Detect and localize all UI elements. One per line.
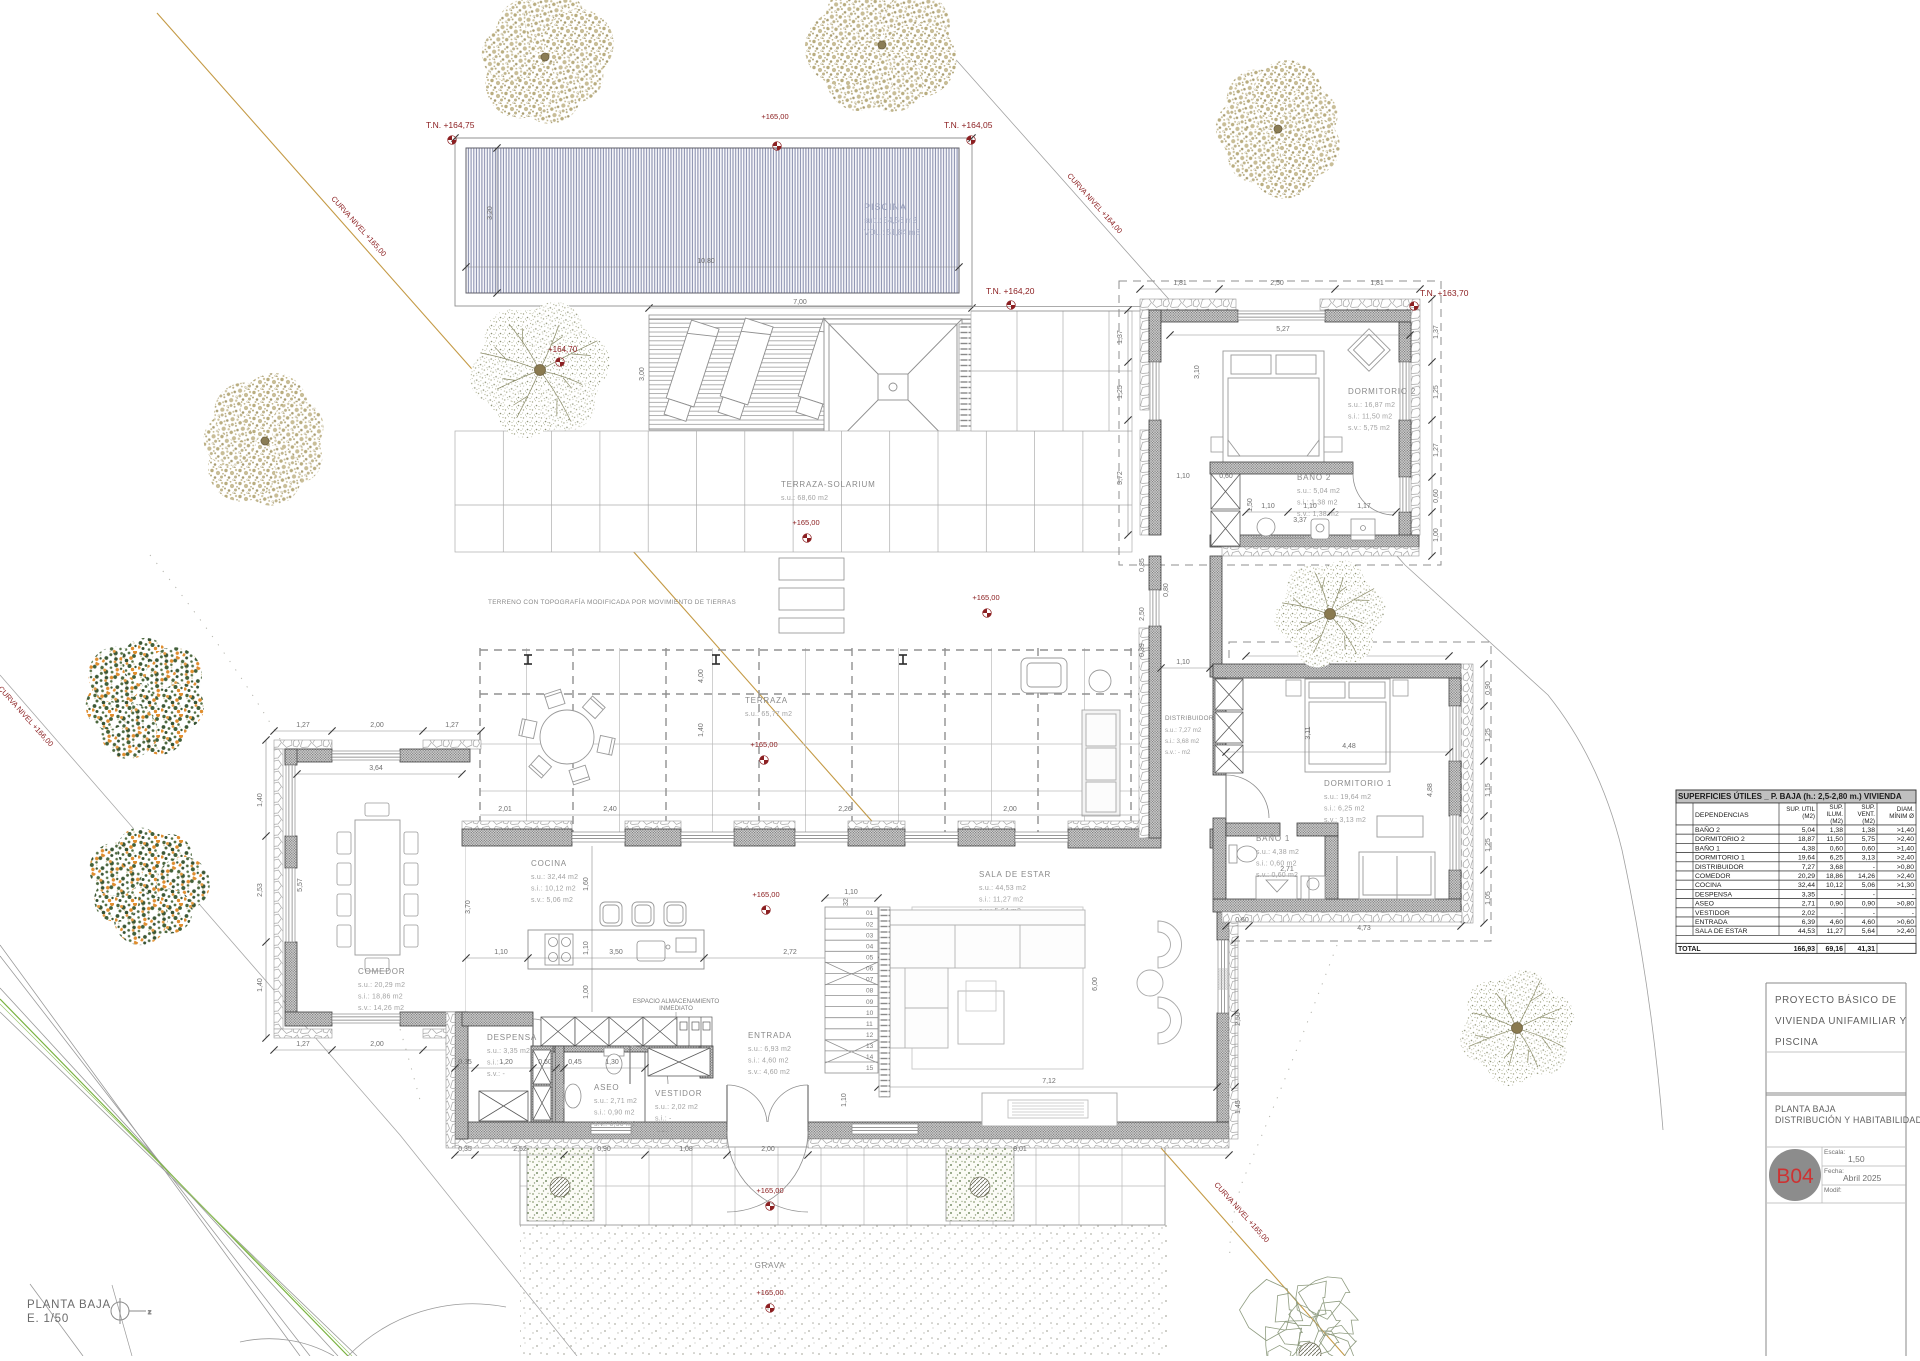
svg-text:13: 13: [866, 1043, 874, 1050]
svg-text:10: 10: [866, 1010, 874, 1017]
svg-text:0,90: 0,90: [1830, 901, 1843, 908]
svg-text:3,10: 3,10: [1194, 365, 1201, 379]
svg-text:11,50: 11,50: [1826, 836, 1843, 843]
svg-text:1,50: 1,50: [1848, 1154, 1865, 1164]
svg-text:0,90: 0,90: [597, 1146, 611, 1153]
svg-text:1,08: 1,08: [679, 1146, 693, 1153]
svg-text:0,45: 0,45: [568, 1059, 582, 1066]
svg-text:VIVIENDA UNIFAMILIAR Y: VIVIENDA UNIFAMILIAR Y: [1775, 1016, 1907, 1027]
svg-text:SALA DE ESTAR: SALA DE ESTAR: [1695, 928, 1747, 935]
svg-text:05: 05: [866, 955, 874, 962]
svg-text:4,60: 4,60: [1830, 919, 1843, 926]
svg-text:DORMITORIO 2: DORMITORIO 2: [1695, 836, 1745, 843]
svg-text:2,00: 2,00: [370, 1041, 384, 1048]
svg-text:2,72: 2,72: [783, 949, 797, 956]
svg-text:2,01: 2,01: [498, 806, 512, 813]
svg-text:T.N. +164,75: T.N. +164,75: [426, 120, 475, 130]
svg-text:s.u.: 5,04 m2: s.u.: 5,04 m2: [1297, 488, 1340, 495]
svg-text:ILUM.: ILUM.: [1826, 811, 1843, 818]
svg-text:-: -: [1841, 910, 1843, 917]
svg-text:DESPENSA: DESPENSA: [1695, 891, 1732, 898]
svg-text:1,40: 1,40: [698, 723, 705, 737]
svg-text:5,04: 5,04: [1802, 827, 1815, 834]
svg-text:(M2): (M2): [1802, 813, 1815, 820]
svg-text:09: 09: [866, 999, 874, 1006]
svg-text:BAÑO 1: BAÑO 1: [1256, 834, 1290, 843]
svg-text:1,10: 1,10: [494, 949, 508, 956]
svg-text:s.v.: 0,90 m2: s.v.: 0,90 m2: [594, 1121, 636, 1128]
svg-text:2,00: 2,00: [370, 722, 384, 729]
svg-text:2,50: 2,50: [1235, 1012, 1242, 1026]
svg-text:>0,80: >0,80: [1897, 901, 1914, 908]
svg-text:0,60: 0,60: [1433, 489, 1440, 503]
svg-text:SUPERFICIES ÚTILES _ P. BAJA (: SUPERFICIES ÚTILES _ P. BAJA (h.: 2,5-2,…: [1678, 792, 1902, 801]
svg-text:3,35: 3,35: [1802, 891, 1815, 898]
svg-text:>2,40: >2,40: [1897, 836, 1914, 843]
svg-text:Fecha:: Fecha:: [1824, 1168, 1844, 1175]
svg-text:0,60: 0,60: [1862, 845, 1875, 852]
svg-text:1,10: 1,10: [844, 889, 858, 896]
svg-text:4,38: 4,38: [1802, 845, 1815, 852]
svg-text:+165,00: +165,00: [761, 112, 788, 121]
svg-text:-: -: [1873, 910, 1875, 917]
svg-text:s.v.: - m2: s.v.: - m2: [1165, 749, 1191, 756]
svg-text:ASEO: ASEO: [594, 1083, 619, 1092]
svg-text:s.i.: 10,12 m2: s.i.: 10,12 m2: [531, 886, 576, 893]
svg-text:1,45: 1,45: [1235, 1100, 1242, 1114]
svg-text:7,00: 7,00: [793, 299, 807, 306]
svg-text:s.i.: -: s.i.: -: [655, 1116, 672, 1123]
svg-text:1,27: 1,27: [296, 722, 310, 729]
svg-text:GRAVA: GRAVA: [755, 1261, 786, 1270]
svg-text:0,85: 0,85: [1139, 558, 1146, 572]
svg-text:-: -: [1912, 891, 1914, 898]
svg-text:s.v.: 0,60 m2: s.v.: 0,60 m2: [1256, 872, 1298, 879]
svg-text:COCINA: COCINA: [1695, 882, 1722, 889]
svg-text:VENT.: VENT.: [1857, 811, 1875, 818]
svg-text:20,29: 20,29: [1798, 873, 1815, 880]
svg-text:s.u.: 65,77 m2: s.u.: 65,77 m2: [745, 711, 792, 718]
svg-text:s.i.: 0,90 m2: s.i.: 0,90 m2: [594, 1110, 635, 1117]
svg-text:>2,40: >2,40: [1897, 928, 1914, 935]
svg-text:1,81: 1,81: [1173, 280, 1187, 287]
svg-text:11: 11: [866, 1021, 873, 1028]
svg-text:1,25: 1,25: [1485, 838, 1492, 852]
svg-text:1,38: 1,38: [1830, 827, 1843, 834]
svg-text:s.u.: 7,27 m2: s.u.: 7,27 m2: [1165, 727, 1202, 734]
svg-text:3,37: 3,37: [1293, 517, 1307, 524]
svg-text:06: 06: [866, 966, 874, 973]
svg-text:1,60: 1,60: [583, 877, 590, 891]
svg-text:DESPENSA: DESPENSA: [487, 1033, 537, 1042]
svg-text:0,35: 0,35: [458, 1059, 472, 1066]
svg-text:5,75: 5,75: [1862, 836, 1875, 843]
svg-text:B04: B04: [1776, 1165, 1814, 1188]
svg-text:VOL.: 51,84 m3: VOL.: 51,84 m3: [864, 228, 921, 237]
svg-text:1,50: 1,50: [1247, 498, 1254, 512]
svg-text:11,27: 11,27: [1826, 928, 1843, 935]
svg-text:4,60: 4,60: [1862, 919, 1875, 926]
svg-text:ENTRADA: ENTRADA: [748, 1031, 792, 1040]
svg-text:1,38: 1,38: [1862, 827, 1875, 834]
svg-text:VESTIDOR: VESTIDOR: [655, 1089, 702, 1098]
svg-text:>2,40: >2,40: [1897, 855, 1914, 862]
svg-text:2,00: 2,00: [761, 1146, 775, 1153]
svg-text:s.u.: 16,87 m2: s.u.: 16,87 m2: [1348, 402, 1395, 409]
svg-text:1,20: 1,20: [499, 1059, 513, 1066]
svg-text:1,37: 1,37: [1117, 330, 1124, 344]
svg-text:4,48: 4,48: [1342, 743, 1356, 750]
svg-text:69,16: 69,16: [1825, 946, 1843, 953]
svg-text:5,27: 5,27: [1276, 326, 1290, 333]
svg-text:6,39: 6,39: [1802, 919, 1815, 926]
svg-text:0,90: 0,90: [1862, 901, 1875, 908]
svg-text:19,64: 19,64: [1798, 855, 1815, 862]
svg-text:Modif:: Modif:: [1824, 1187, 1842, 1194]
svg-text:2,50: 2,50: [1270, 280, 1284, 287]
svg-text:2,00: 2,00: [1003, 806, 1017, 813]
svg-text:1,10: 1,10: [1303, 503, 1317, 510]
svg-text:DISTRIBUIDOR: DISTRIBUIDOR: [1695, 864, 1744, 871]
svg-text:PLANTA BAJA: PLANTA BAJA: [1775, 1104, 1836, 1114]
svg-text:1,10: 1,10: [1176, 659, 1190, 666]
svg-text:DISTRIBUCIÓN Y HABITABILIDAD: DISTRIBUCIÓN Y HABITABILIDAD: [1775, 1115, 1920, 1125]
svg-text:DISTRIBUIDOR: DISTRIBUIDOR: [1165, 715, 1214, 722]
svg-text:+165,00: +165,00: [972, 593, 999, 602]
svg-text:3,70: 3,70: [465, 900, 472, 914]
svg-text:2,40: 2,40: [603, 806, 617, 813]
svg-text:+165,00: +165,00: [792, 518, 819, 527]
svg-text:SUP.: SUP.: [1861, 804, 1875, 811]
svg-text:4,00: 4,00: [698, 669, 705, 683]
svg-text:5,64: 5,64: [1862, 928, 1875, 935]
svg-text:(M2): (M2): [1862, 818, 1875, 825]
svg-text:SUP.: SUP.: [1829, 804, 1843, 811]
svg-text:1,27: 1,27: [445, 722, 459, 729]
svg-text:PROYECTO BÁSICO DE: PROYECTO BÁSICO DE: [1775, 995, 1897, 1006]
svg-text:08: 08: [866, 988, 874, 995]
svg-text:MÍNIM Ø: MÍNIM Ø: [1889, 813, 1914, 820]
svg-text:0,60: 0,60: [1830, 845, 1843, 852]
svg-text:15: 15: [866, 1065, 874, 1072]
svg-text:-: -: [1912, 910, 1914, 917]
svg-text:COCINA: COCINA: [531, 859, 567, 868]
svg-text:10,12: 10,12: [1826, 882, 1843, 889]
svg-text:ASEO: ASEO: [1695, 901, 1714, 908]
svg-text:s.u.: 6,93 m2: s.u.: 6,93 m2: [748, 1046, 791, 1053]
svg-text:DORMITORIO 1: DORMITORIO 1: [1695, 855, 1745, 862]
svg-text:2,53: 2,53: [257, 883, 264, 897]
svg-text:2,02: 2,02: [1802, 910, 1815, 917]
svg-text:Escala:: Escala:: [1824, 1149, 1846, 1156]
svg-text:(M2): (M2): [1830, 818, 1843, 825]
svg-text:10,80: 10,80: [697, 258, 715, 265]
svg-text:7,12: 7,12: [1042, 1078, 1056, 1085]
svg-text:2,71: 2,71: [1280, 866, 1294, 873]
svg-text:0,60: 0,60: [1219, 473, 1233, 480]
svg-text:+165,00: +165,00: [752, 890, 779, 899]
svg-text:ENTRADA: ENTRADA: [1695, 919, 1728, 926]
svg-text:44,53: 44,53: [1798, 928, 1815, 935]
svg-text:03: 03: [866, 932, 874, 939]
svg-text:14: 14: [866, 1054, 874, 1061]
svg-text:1,10: 1,10: [841, 1093, 848, 1107]
svg-text:BAÑO 2: BAÑO 2: [1695, 825, 1720, 834]
svg-text:BAÑO 2: BAÑO 2: [1297, 473, 1331, 482]
svg-text:COMEDOR: COMEDOR: [1695, 873, 1731, 880]
svg-text:s.u.: 4,38 m2: s.u.: 4,38 m2: [1256, 849, 1299, 856]
svg-text:TERRAZA-SOLARIUM: TERRAZA-SOLARIUM: [781, 480, 876, 489]
svg-text:ESPACIO ALMACENAMIENTO: ESPACIO ALMACENAMIENTO: [633, 998, 720, 1005]
svg-text:1,40: 1,40: [257, 978, 264, 992]
svg-text:0,60: 0,60: [538, 1059, 552, 1066]
svg-text:>1,40: >1,40: [1897, 845, 1914, 852]
svg-text:s.u.: 2,71 m2: s.u.: 2,71 m2: [594, 1098, 637, 1105]
svg-text:T.N. +164,05: T.N. +164,05: [944, 120, 993, 130]
svg-text:s.u.: 19,64 m2: s.u.: 19,64 m2: [1324, 794, 1371, 801]
svg-text:1,10: 1,10: [1261, 503, 1275, 510]
svg-text:INMEDIATO: INMEDIATO: [659, 1005, 693, 1012]
svg-text:T.N. +163,70: T.N. +163,70: [1420, 288, 1469, 298]
svg-text:3,68: 3,68: [1830, 864, 1843, 871]
svg-text:TOTAL: TOTAL: [1678, 946, 1701, 953]
svg-text:TERRENO CON TOPOGRAFÍA MODIFIC: TERRENO CON TOPOGRAFÍA MODIFICADA POR MO…: [488, 597, 736, 606]
svg-text:9,01: 9,01: [1013, 1146, 1027, 1153]
svg-text:>0,60: >0,60: [1897, 919, 1914, 926]
svg-text:166,93: 166,93: [1794, 946, 1816, 953]
svg-text:18,87: 18,87: [1798, 836, 1815, 843]
svg-text:SALA DE ESTAR: SALA DE ESTAR: [979, 870, 1051, 879]
svg-text:>1,30: >1,30: [1897, 882, 1914, 889]
svg-text:DORMITORIO 1: DORMITORIO 1: [1324, 779, 1392, 788]
svg-text:s.i.: 6,25 m2: s.i.: 6,25 m2: [1324, 806, 1365, 813]
svg-text:1,10: 1,10: [1176, 473, 1190, 480]
svg-text:1,10: 1,10: [583, 941, 590, 955]
svg-text:14,26: 14,26: [1858, 873, 1875, 880]
svg-text:3,20: 3,20: [487, 206, 494, 220]
svg-text:s.i.: 11,27 m2: s.i.: 11,27 m2: [979, 897, 1023, 904]
svg-text:04: 04: [866, 943, 874, 950]
svg-text:2,50: 2,50: [1139, 607, 1146, 621]
svg-text:3,13: 3,13: [1862, 855, 1875, 862]
svg-text:s.u.: 32,44 m2: s.u.: 32,44 m2: [531, 874, 578, 881]
svg-text:COMEDOR: COMEDOR: [358, 967, 405, 976]
svg-text:1,27: 1,27: [296, 1041, 310, 1048]
svg-text:3,64: 3,64: [369, 765, 383, 772]
svg-text:5,57: 5,57: [297, 878, 304, 892]
svg-text:5,06: 5,06: [1862, 882, 1875, 889]
svg-text:TERRAZA: TERRAZA: [745, 696, 788, 705]
svg-text:-: -: [1873, 864, 1875, 871]
svg-text:0,60: 0,60: [1235, 917, 1249, 924]
svg-text:s.v.: 5,75 m2: s.v.: 5,75 m2: [1348, 425, 1390, 432]
svg-text:2,26: 2,26: [838, 806, 852, 813]
svg-text:0,90: 0,90: [1485, 681, 1492, 695]
svg-text:07: 07: [866, 977, 874, 984]
svg-text:+165,00: +165,00: [756, 1288, 783, 1297]
svg-text:s.i.: 18,86 m2: s.i.: 18,86 m2: [358, 994, 403, 1001]
svg-text:s.i.: 3,68 m2: s.i.: 3,68 m2: [1165, 738, 1200, 745]
svg-text:SUP. UTIL: SUP. UTIL: [1786, 806, 1815, 813]
svg-text:1,27: 1,27: [1433, 443, 1440, 457]
svg-text:3,72: 3,72: [1117, 471, 1124, 485]
svg-text:1,17: 1,17: [1357, 503, 1371, 510]
svg-text:PLANTA BAJA: PLANTA BAJA: [27, 1299, 111, 1311]
svg-text:>0,80: >0,80: [1897, 864, 1914, 871]
svg-text:s.u.: 3,35 m2: s.u.: 3,35 m2: [487, 1048, 530, 1055]
svg-text:z: z: [148, 1309, 151, 1316]
svg-text:7,27: 7,27: [1802, 864, 1815, 871]
svg-text:DIAM.: DIAM.: [1897, 806, 1914, 813]
svg-text:PISCINA: PISCINA: [1775, 1037, 1818, 1048]
svg-text:41,31: 41,31: [1857, 946, 1875, 953]
svg-text:6,00: 6,00: [1092, 977, 1099, 991]
svg-text:6,25: 6,25: [1830, 855, 1843, 862]
svg-text:s.v.: 4,60 m2: s.v.: 4,60 m2: [748, 1069, 790, 1076]
svg-text:+164,70: +164,70: [548, 345, 578, 354]
svg-text:BAÑO 1: BAÑO 1: [1695, 843, 1720, 852]
svg-text:1,05: 1,05: [1485, 891, 1492, 905]
svg-text:12: 12: [866, 1032, 874, 1039]
svg-text:>2,40: >2,40: [1897, 873, 1914, 880]
svg-text:+165,00: +165,00: [756, 1186, 783, 1195]
svg-text:1,25: 1,25: [1117, 385, 1124, 399]
svg-text:01: 01: [866, 910, 874, 917]
svg-text:E. 1/50: E. 1/50: [27, 1313, 69, 1325]
svg-text:>1,40: >1,40: [1897, 827, 1914, 834]
svg-text:s.v.: 5,06 m2: s.v.: 5,06 m2: [531, 897, 573, 904]
svg-text:1,40: 1,40: [257, 793, 264, 807]
svg-text:3,00: 3,00: [639, 367, 646, 381]
svg-text:1,30: 1,30: [605, 1059, 619, 1066]
svg-text:T.N. +164,20: T.N. +164,20: [986, 286, 1035, 296]
svg-text:VESTIDOR: VESTIDOR: [1695, 910, 1730, 917]
svg-text:PISCINA: PISCINA: [864, 202, 907, 212]
svg-text:0,35: 0,35: [458, 1146, 472, 1153]
svg-text:sup.: 34,56 m2: sup.: 34,56 m2: [864, 216, 917, 225]
svg-text:s.v.: -: s.v.: -: [655, 1127, 673, 1134]
svg-text:1,15: 1,15: [1485, 783, 1492, 797]
svg-text:1,81: 1,81: [1370, 280, 1384, 287]
svg-text:s.u.: 68,60 m2: s.u.: 68,60 m2: [781, 495, 828, 502]
svg-text:0,80: 0,80: [1163, 583, 1170, 597]
svg-text:s.v.: 14,26 m2: s.v.: 14,26 m2: [358, 1005, 404, 1012]
svg-text:02: 02: [866, 921, 874, 928]
svg-text:18,86: 18,86: [1826, 873, 1843, 880]
svg-text:1,00: 1,00: [1433, 528, 1440, 542]
svg-text:2,52: 2,52: [513, 1146, 527, 1153]
svg-text:-: -: [1873, 891, 1875, 898]
svg-text:3,11: 3,11: [1305, 726, 1312, 739]
svg-text:Abril 2025: Abril 2025: [1843, 1173, 1882, 1183]
svg-text:DORMITORIO 2: DORMITORIO 2: [1348, 387, 1416, 396]
svg-text:-: -: [1841, 891, 1843, 898]
svg-text:s.i.: 4,60 m2: s.i.: 4,60 m2: [748, 1058, 789, 1065]
svg-text:2,71: 2,71: [1802, 901, 1815, 908]
svg-text:s.u.: 20,29 m2: s.u.: 20,29 m2: [358, 982, 405, 989]
svg-text:s.i.: 11,50 m2: s.i.: 11,50 m2: [1348, 414, 1392, 421]
svg-text:DEPENDENCIAS: DEPENDENCIAS: [1695, 812, 1749, 819]
svg-text:0,89: 0,89: [1139, 643, 1146, 657]
svg-text:1,00: 1,00: [583, 985, 590, 999]
svg-text:32,44: 32,44: [1798, 882, 1815, 889]
svg-text:s.u.: 44,53 m2: s.u.: 44,53 m2: [979, 885, 1026, 892]
svg-text:1,25: 1,25: [1433, 385, 1440, 399]
svg-text:+165,00: +165,00: [750, 740, 777, 749]
svg-text:4,88: 4,88: [1427, 783, 1434, 797]
svg-text:s.u.: 2,02 m2: s.u.: 2,02 m2: [655, 1104, 698, 1111]
svg-text:3,50: 3,50: [609, 949, 623, 956]
svg-text:1,25: 1,25: [1485, 728, 1492, 742]
svg-text:s.v.: -: s.v.: -: [487, 1071, 505, 1078]
svg-text:1,37: 1,37: [1433, 325, 1440, 339]
